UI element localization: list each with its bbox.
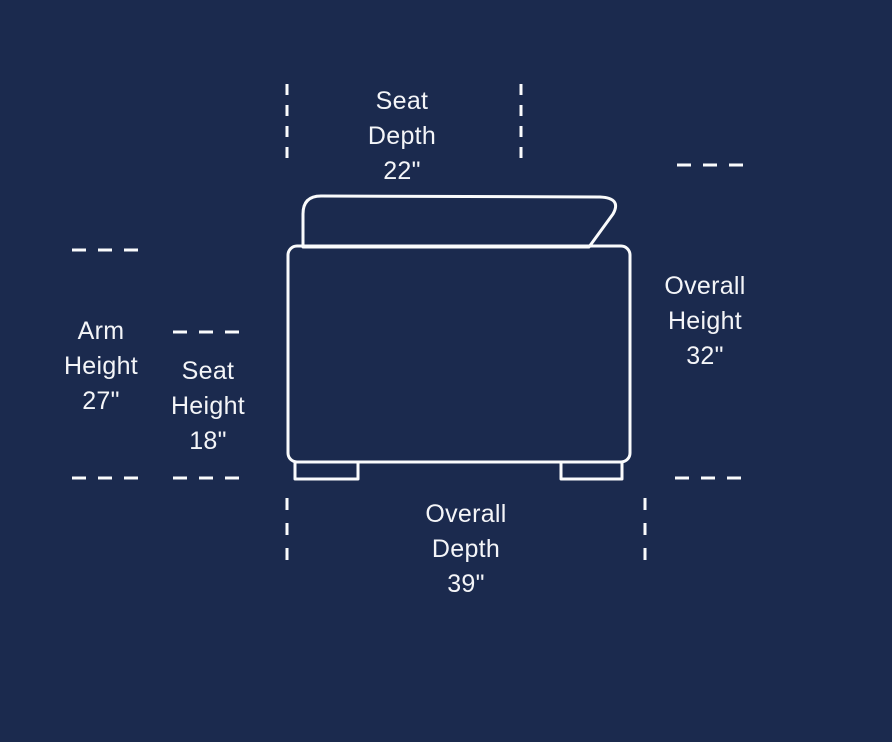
seat-height-word-1: Seat	[133, 354, 283, 389]
chair-body	[288, 246, 630, 462]
seat-depth-label: Seat Depth 22"	[327, 84, 477, 189]
seat-depth-word-1: Seat	[327, 84, 477, 119]
seat-depth-value: 22"	[327, 154, 477, 189]
overall-height-word-1: Overall	[630, 269, 780, 304]
chair-foot-right	[561, 462, 622, 479]
chair-back-cushion	[303, 196, 616, 247]
seat-height-label: Seat Height 18"	[133, 354, 283, 459]
overall-height-label: Overall Height 32"	[630, 269, 780, 374]
overall-depth-word-2: Depth	[391, 532, 541, 567]
arm-height-word-1: Arm	[26, 314, 176, 349]
overall-depth-label: Overall Depth 39"	[391, 497, 541, 602]
overall-height-value: 32"	[630, 339, 780, 374]
overall-depth-value: 39"	[391, 567, 541, 602]
dimension-diagram: Seat Depth 22" Arm Height 27" Seat Heigh…	[0, 0, 892, 742]
seat-depth-word-2: Depth	[327, 119, 477, 154]
chair-foot-left	[295, 462, 358, 479]
overall-height-word-2: Height	[630, 304, 780, 339]
overall-depth-word-1: Overall	[391, 497, 541, 532]
seat-height-word-2: Height	[133, 389, 283, 424]
seat-height-value: 18"	[133, 424, 283, 459]
